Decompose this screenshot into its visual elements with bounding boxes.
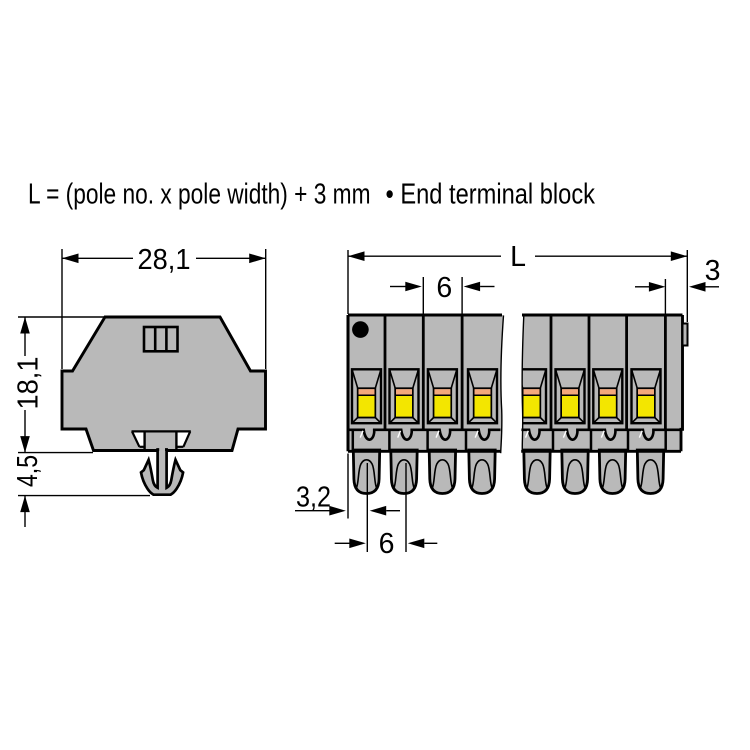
svg-text:6: 6: [379, 528, 395, 560]
svg-text:6: 6: [436, 272, 452, 304]
svg-text:4,5: 4,5: [12, 455, 44, 487]
svg-text:28,1: 28,1: [138, 244, 191, 276]
svg-text:• End terminal block: • End terminal block: [386, 179, 596, 211]
svg-text:3,2: 3,2: [296, 482, 331, 514]
svg-text:L = (pole no. x pole width) +: L = (pole no. x pole width) + 3 mm: [28, 179, 371, 211]
svg-text:18,1: 18,1: [13, 357, 45, 410]
svg-text:L: L: [510, 241, 526, 273]
svg-text:3: 3: [705, 255, 721, 287]
